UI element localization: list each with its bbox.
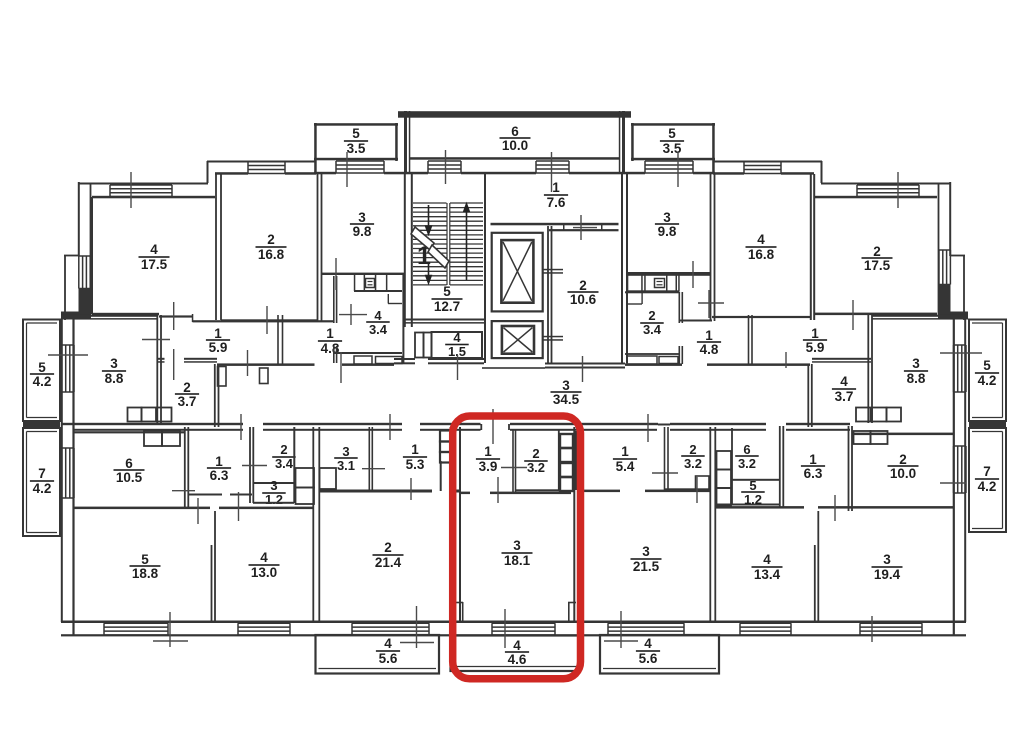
svg-text:3: 3: [663, 210, 671, 225]
svg-text:5: 5: [352, 126, 360, 141]
svg-text:4: 4: [150, 242, 158, 257]
svg-text:2: 2: [689, 442, 696, 457]
svg-text:3: 3: [883, 552, 891, 567]
svg-text:13.0: 13.0: [251, 565, 277, 580]
svg-text:10.6: 10.6: [570, 292, 597, 307]
svg-text:5.6: 5.6: [639, 651, 658, 666]
svg-text:3: 3: [270, 478, 277, 493]
svg-text:4: 4: [763, 552, 771, 567]
svg-text:2: 2: [384, 540, 392, 555]
svg-text:1.2: 1.2: [265, 492, 283, 507]
svg-text:2: 2: [267, 232, 275, 247]
svg-text:2: 2: [899, 452, 907, 467]
svg-text:4: 4: [513, 638, 521, 653]
svg-text:5: 5: [38, 360, 46, 375]
svg-text:18.8: 18.8: [132, 566, 159, 581]
svg-text:2: 2: [532, 446, 539, 461]
svg-text:6.3: 6.3: [210, 468, 229, 483]
svg-text:3: 3: [642, 544, 650, 559]
svg-text:5.9: 5.9: [806, 340, 825, 355]
svg-text:5.4: 5.4: [616, 459, 635, 474]
svg-text:19.4: 19.4: [874, 567, 901, 582]
svg-text:1: 1: [552, 180, 560, 195]
svg-text:7: 7: [983, 464, 991, 479]
svg-text:1: 1: [326, 326, 334, 341]
svg-text:4.8: 4.8: [700, 342, 719, 357]
svg-text:4.2: 4.2: [33, 374, 52, 389]
svg-text:3.9: 3.9: [479, 459, 498, 474]
svg-text:21.5: 21.5: [633, 559, 660, 574]
svg-text:3.2: 3.2: [684, 456, 702, 471]
svg-text:5.6: 5.6: [379, 651, 398, 666]
svg-text:1: 1: [484, 444, 492, 459]
svg-text:2: 2: [280, 442, 287, 457]
svg-text:1: 1: [417, 242, 431, 270]
svg-text:4.2: 4.2: [978, 479, 997, 494]
svg-text:2: 2: [579, 278, 587, 293]
svg-text:13.4: 13.4: [754, 567, 781, 582]
svg-text:4.2: 4.2: [978, 373, 997, 388]
svg-text:5: 5: [749, 478, 756, 493]
svg-text:1: 1: [621, 444, 629, 459]
svg-text:1: 1: [214, 326, 222, 341]
svg-text:3.2: 3.2: [527, 460, 545, 475]
svg-text:4: 4: [453, 330, 461, 345]
svg-text:17.5: 17.5: [864, 258, 891, 273]
svg-text:1: 1: [811, 326, 819, 341]
svg-text:5.3: 5.3: [406, 457, 425, 472]
svg-text:3: 3: [912, 356, 920, 371]
svg-text:2: 2: [648, 308, 655, 323]
svg-text:1: 1: [411, 442, 419, 457]
svg-text:9.8: 9.8: [658, 224, 677, 239]
svg-text:10.5: 10.5: [116, 470, 143, 485]
svg-text:1: 1: [705, 328, 713, 343]
svg-text:3: 3: [562, 378, 570, 393]
svg-text:3.2: 3.2: [738, 456, 756, 471]
svg-text:18.1: 18.1: [504, 553, 531, 568]
svg-text:5: 5: [141, 552, 149, 567]
svg-text:4: 4: [384, 636, 392, 651]
svg-text:3: 3: [342, 444, 349, 459]
svg-text:3.4: 3.4: [275, 456, 294, 471]
svg-text:4.6: 4.6: [508, 652, 527, 667]
svg-text:6: 6: [511, 124, 519, 139]
svg-text:10.0: 10.0: [890, 466, 916, 481]
svg-text:7: 7: [38, 466, 46, 481]
svg-text:6: 6: [125, 456, 133, 471]
svg-text:16.8: 16.8: [748, 247, 775, 262]
svg-text:17.5: 17.5: [141, 257, 168, 272]
svg-text:6: 6: [743, 442, 750, 457]
svg-text:1.2: 1.2: [744, 492, 762, 507]
svg-text:4: 4: [260, 550, 268, 565]
svg-text:5.9: 5.9: [209, 340, 228, 355]
svg-text:4: 4: [757, 232, 765, 247]
svg-text:1: 1: [215, 454, 223, 469]
svg-text:8.8: 8.8: [907, 371, 926, 386]
svg-text:5: 5: [668, 126, 676, 141]
svg-text:2: 2: [183, 380, 191, 395]
svg-text:10.0: 10.0: [502, 138, 528, 153]
svg-text:3.1: 3.1: [337, 458, 355, 473]
svg-text:4.2: 4.2: [33, 481, 52, 496]
svg-text:8.8: 8.8: [105, 371, 124, 386]
svg-text:3.5: 3.5: [347, 141, 366, 156]
svg-text:6.3: 6.3: [804, 466, 823, 481]
svg-text:5: 5: [983, 358, 991, 373]
svg-text:4: 4: [840, 374, 848, 389]
svg-text:3: 3: [513, 538, 521, 553]
svg-text:21.4: 21.4: [375, 555, 402, 570]
svg-text:3: 3: [110, 356, 118, 371]
svg-text:3.4: 3.4: [369, 322, 388, 337]
svg-text:1: 1: [809, 452, 817, 467]
svg-text:4: 4: [644, 636, 652, 651]
svg-text:5: 5: [443, 284, 451, 299]
svg-text:3.7: 3.7: [178, 394, 197, 409]
svg-text:12.7: 12.7: [434, 299, 460, 314]
svg-text:7.6: 7.6: [547, 195, 566, 210]
svg-text:3.7: 3.7: [835, 389, 854, 404]
svg-text:3: 3: [358, 210, 366, 225]
svg-text:3.5: 3.5: [663, 141, 682, 156]
svg-text:9.8: 9.8: [353, 224, 372, 239]
svg-text:2: 2: [873, 244, 881, 259]
svg-text:4: 4: [374, 308, 382, 323]
svg-text:16.8: 16.8: [258, 247, 285, 262]
svg-text:34.5: 34.5: [553, 392, 580, 407]
svg-text:3.4: 3.4: [643, 322, 662, 337]
